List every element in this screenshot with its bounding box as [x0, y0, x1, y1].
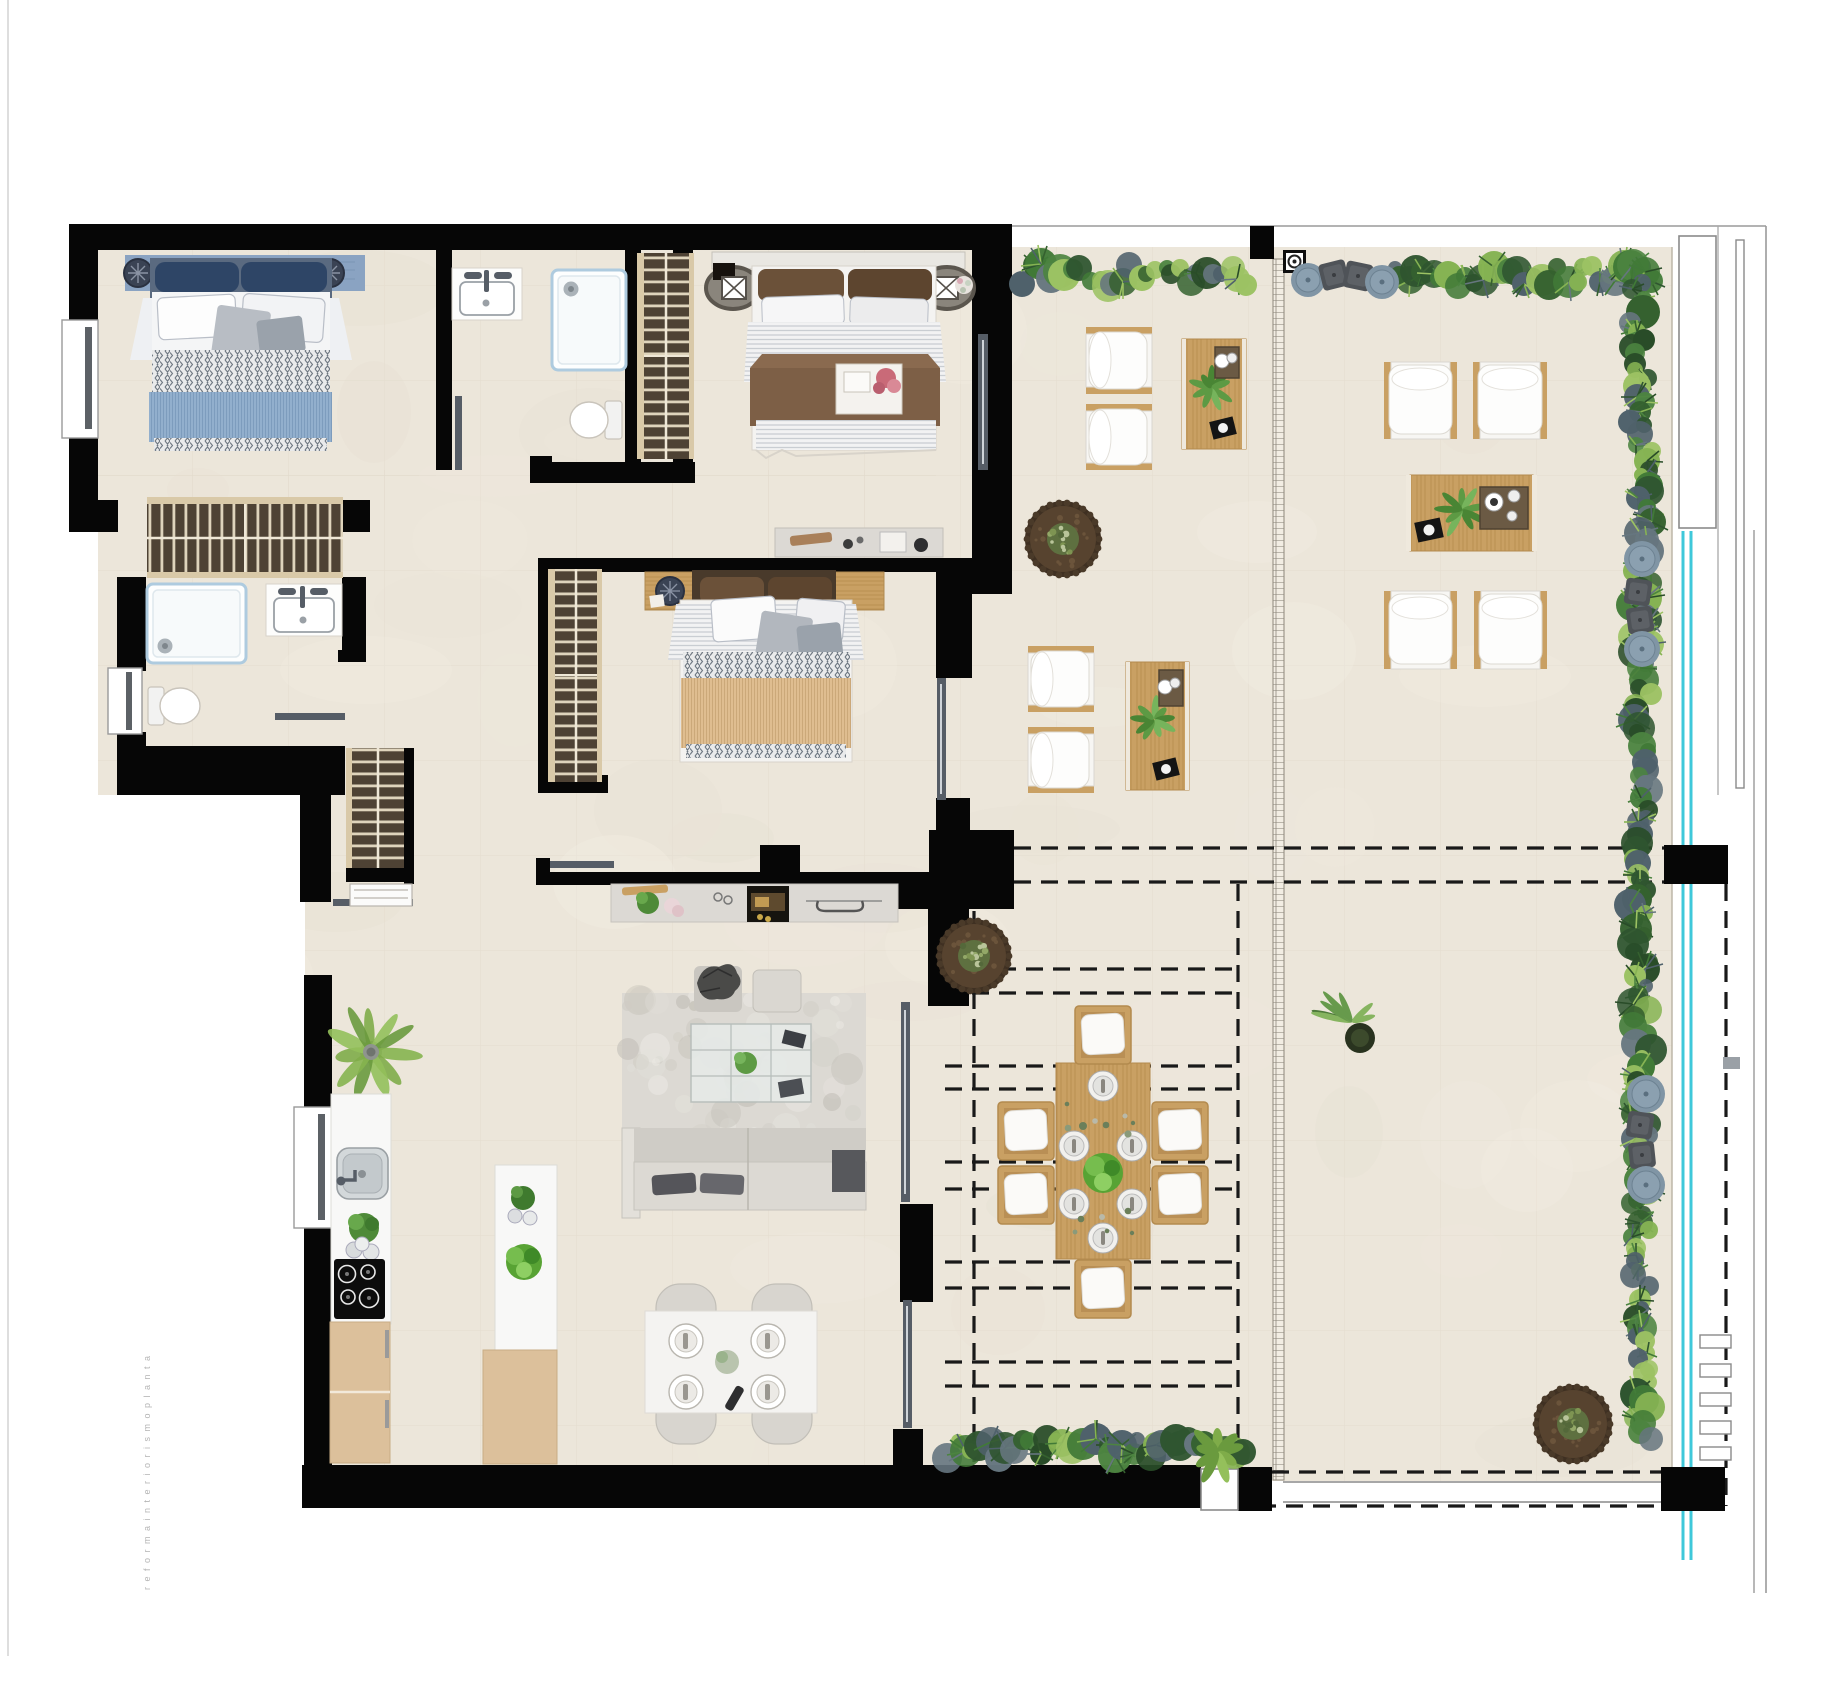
svg-text:r e f o r m a i n t e r i o: r e f o r m a i n t e r i o r i s m o p …: [142, 1354, 152, 1590]
